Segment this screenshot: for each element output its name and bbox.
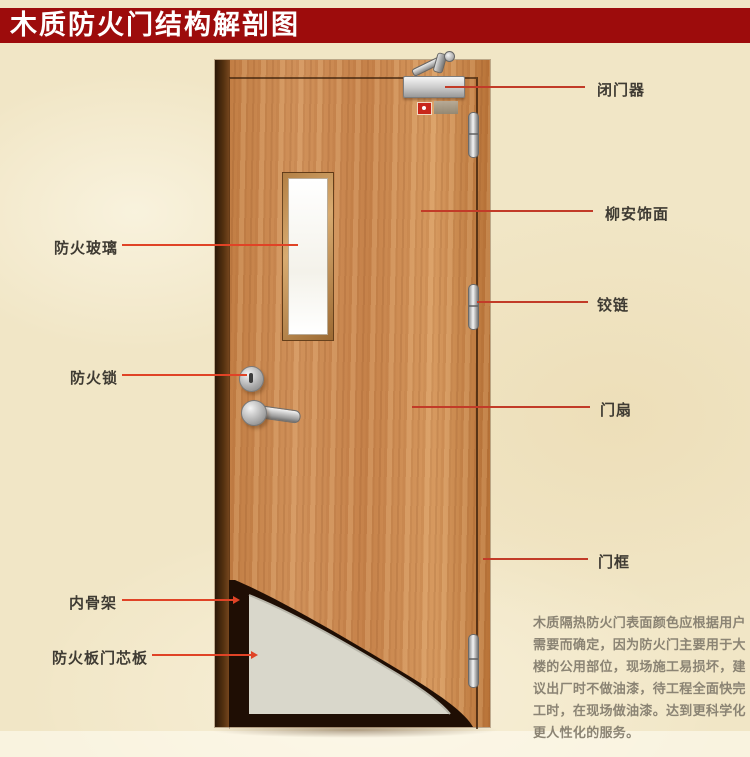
description-line: 楼的公用部位，现场施工易损坏，建 — [533, 656, 748, 678]
leader-door-closer — [445, 86, 585, 88]
description-line: 议出厂时不做油漆，待工程全面快完 — [533, 678, 748, 700]
leader-fire-board-core — [152, 654, 252, 656]
page-title: 木质防火门结构解剖图 — [10, 9, 300, 42]
glass-window-frame — [282, 172, 334, 341]
closer-arm-knob — [444, 51, 455, 62]
leader-fire-lock — [122, 374, 247, 376]
label-fire-lock: 防火锁 — [0, 367, 118, 388]
leader-inner-skeleton — [122, 599, 234, 601]
handle-rose — [241, 400, 267, 426]
description-line: 更人性化的服务。 — [533, 722, 748, 744]
leader-hinge — [477, 301, 588, 303]
leader-lauan-veneer — [421, 210, 593, 212]
leader-door-frame — [483, 558, 588, 560]
label-inner-skeleton: 内骨架 — [0, 592, 117, 613]
gray-plate — [434, 101, 458, 114]
hinge-top — [468, 112, 479, 158]
red-indicator — [417, 102, 432, 115]
label-door-closer: 闭门器 — [597, 79, 645, 100]
description-line: 木质隔热防火门表面颜色应根据用户 — [533, 612, 748, 634]
description-paragraph: 木质隔热防火门表面颜色应根据用户 需要而确定，因为防火门主要用于大 楼的公用部位… — [533, 612, 748, 744]
cutaway-core-board — [249, 595, 450, 714]
label-hinge: 铰链 — [597, 294, 629, 315]
label-fire-board-core: 防火板门芯板 — [0, 647, 148, 668]
page: 木质防火门结构解剖图 — [0, 0, 750, 757]
label-door-leaf: 门扇 — [600, 399, 632, 420]
description-line: 需要而确定，因为防火门主要用于大 — [533, 634, 748, 656]
label-lauan-veneer: 柳安饰面 — [605, 203, 669, 224]
keyhole-escutcheon — [239, 366, 264, 392]
door-illustration — [215, 60, 490, 727]
description-line: 工时，在现场做油漆。达到更科学化 — [533, 700, 748, 722]
hinge-middle — [468, 284, 479, 330]
title-banner: 木质防火门结构解剖图 — [0, 8, 750, 43]
label-fire-glass: 防火玻璃 — [0, 237, 118, 258]
hinge-bottom — [468, 634, 479, 688]
glass-window — [288, 178, 328, 335]
cutaway-section — [229, 573, 491, 727]
leader-fire-glass — [122, 244, 298, 246]
left-frame-jamb — [215, 60, 230, 727]
label-door-frame: 门框 — [598, 551, 630, 572]
leader-door-leaf — [412, 406, 590, 408]
